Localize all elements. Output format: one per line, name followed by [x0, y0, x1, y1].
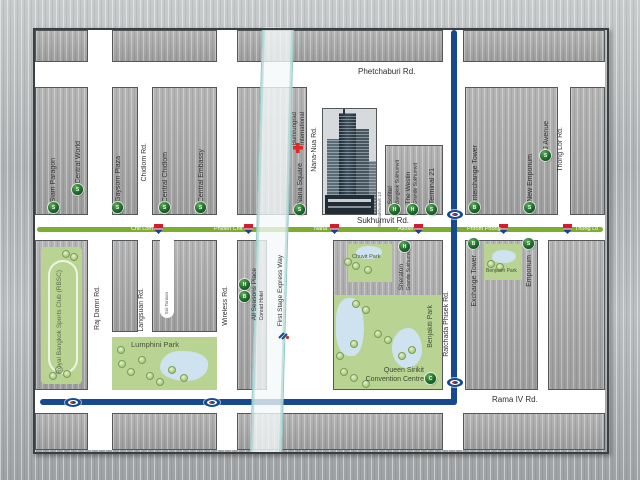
poi-marker-all-seasons-place: B — [239, 291, 250, 302]
tree-icon — [352, 262, 360, 270]
poi-label-exchange-tower: Exchange Tower — [470, 255, 479, 307]
tree-icon — [340, 368, 348, 376]
tree-icon — [146, 372, 154, 380]
station-label-phloen-chit: Phloen Chit — [214, 227, 242, 232]
poi-marker-emporium: S — [523, 238, 534, 249]
poi-label-siam-paragon: Siam Paragon — [49, 158, 58, 202]
tree-icon — [63, 370, 71, 378]
poi-label-terminal21: Terminal 21 — [428, 168, 437, 204]
road-label-rama4: Rama IV Rd. — [492, 395, 538, 404]
road-label-nana-nua: Nana-Nua Rd. — [310, 127, 319, 172]
city-block — [463, 413, 605, 450]
poi-label-westin: The Westin Grande Sukhumvit — [405, 163, 420, 204]
tree-icon — [336, 352, 344, 360]
poi-label-interchange-tower: Interchange Tower — [471, 145, 480, 202]
road-label-raj-damri: Raj Damri Rd. — [93, 286, 102, 330]
poi-marker-interchange-tower: B — [469, 202, 480, 213]
poi-label-nana-square: Nana Square — [296, 163, 305, 204]
tree-icon — [138, 356, 146, 364]
tree-icon — [127, 368, 135, 376]
poi-marker-terminal21: S — [426, 204, 437, 215]
mrt-core — [452, 213, 458, 216]
tree-icon — [118, 360, 126, 368]
road-label-soi-tonson: Soi Tonson — [164, 292, 170, 314]
city-block — [112, 240, 138, 332]
poi-label-sheraton: Sheraton Grande Sukhumvit — [398, 249, 413, 290]
road-label-wireless: Wireless Rd. — [221, 286, 230, 326]
road-label-chidlom: Chidlom Rd. — [140, 143, 149, 182]
mrt-station-icon — [447, 210, 463, 219]
park-label-rbsc: Royal Bangkok Sports Club (RBSC) — [55, 270, 64, 374]
park-label-lumphini: Lumphini Park — [131, 340, 179, 349]
tree-icon — [384, 336, 392, 344]
building-photo — [322, 108, 377, 215]
map-screen: Chit Lom Phloen Chit Nana Asoke Phrom Ph… — [0, 0, 640, 480]
rama4-blue-line — [40, 399, 457, 405]
poi-marker-sofitel: H — [389, 204, 400, 215]
tree-icon — [374, 330, 382, 338]
hospital-cross-icon — [293, 143, 303, 153]
city-block — [35, 413, 88, 450]
tree-icon — [364, 266, 372, 274]
poi-label-bumrungrad: Bumrungrad International — [291, 112, 307, 145]
poi-label-emporium: Emporium — [525, 255, 534, 287]
station-label-asoke: Asoke — [398, 227, 413, 232]
skyscraper-illustration — [323, 109, 376, 214]
station-label-phrom-phong: Phrom Phong — [467, 227, 501, 232]
mrt-station-icon — [447, 378, 463, 387]
poi-marker-central-chidlom: S — [159, 202, 170, 213]
city-block — [463, 30, 605, 62]
city-block — [112, 413, 217, 450]
tree-icon — [408, 346, 416, 354]
mrt-station-icon — [204, 398, 220, 407]
poi-label-central-chidlom: Central Chidlom — [161, 152, 170, 202]
poi-marker-gaysorn-plaza: S — [112, 202, 123, 213]
road-label-ratchada-phisek: Ratchada Phisek Rd. — [442, 291, 451, 357]
poi-marker-central-world: S — [72, 184, 83, 195]
tree-icon — [362, 306, 370, 314]
poi-label-all-seasons: All Seasons Place Conrad Hotel — [251, 268, 266, 320]
poi-marker-siam-paragon: S — [48, 202, 59, 213]
park-label-benjakiti: Benjakiti Park — [426, 305, 435, 348]
poi-label-central-world: Central World — [74, 141, 83, 184]
poi-marker-new-emporium: S — [524, 202, 535, 213]
pond — [336, 298, 364, 356]
poi-marker-central-embassy: S — [195, 202, 206, 213]
tree-icon — [156, 378, 164, 386]
city-block — [35, 30, 88, 62]
road-label-sukhumvit: Sukhumvit Rd. — [357, 216, 409, 225]
poi-marker-queen-sirikit: C — [425, 373, 436, 384]
tree-icon — [344, 258, 352, 266]
tree-icon — [180, 374, 188, 382]
poi-label-sofitel: Sofitel Bangkok Sukhumvit — [387, 160, 402, 204]
tree-icon — [117, 346, 125, 354]
poi-marker-nana-square: S — [294, 204, 305, 215]
pond — [492, 250, 516, 263]
poi-label-j-avenue: J Avenue — [542, 121, 551, 150]
tree-icon — [398, 352, 406, 360]
poi-label-queen-sirikit: Queen Sirikit Convention Centre — [352, 367, 424, 384]
road-label-thong-lor: Thong Lor Rd. — [556, 127, 565, 172]
expressway-logo-icon — [278, 328, 290, 340]
mrt-ring — [450, 212, 460, 217]
tree-icon — [70, 253, 78, 261]
mrt-ring — [207, 400, 217, 405]
poi-marker-westin: H — [407, 204, 418, 215]
city-block — [112, 30, 217, 62]
station-label-chit-lom: Chit Lom — [131, 227, 153, 232]
poi-marker-j-avenue: S — [540, 150, 551, 161]
station-label-nana: Nana — [314, 227, 327, 232]
station-label-thong-lo: Thong Lo — [575, 227, 598, 232]
road-label-phetchaburi: Phetchaburi Rd. — [358, 67, 415, 76]
mrt-core — [209, 401, 215, 404]
tree-icon — [487, 260, 495, 268]
tree-icon — [352, 300, 360, 308]
mrt-core — [452, 381, 458, 384]
city-block — [570, 87, 605, 215]
mrt-ring — [450, 380, 460, 385]
road-label-langsuan: Langsuan Rd. — [137, 288, 146, 332]
poi-label-new-emporium: New Emporium — [526, 154, 535, 202]
tree-icon — [62, 250, 70, 258]
pond — [392, 328, 422, 368]
park-label-benjasiri: Benjasiri Park — [486, 268, 517, 274]
poi-marker-sheraton: H — [399, 241, 410, 252]
tree-icon — [350, 340, 358, 348]
poi-label-gaysorn-plaza: Gaysorn Plaza — [114, 156, 123, 202]
poi-marker-exchange-tower: B — [468, 238, 479, 249]
poi-label-central-embassy: Central Embassy — [197, 149, 206, 202]
poi-marker-conrad-hotel: H — [239, 279, 250, 290]
mrt-ring — [68, 400, 78, 405]
road-label-expressway: First Stage Express Way — [276, 255, 285, 326]
mrt-station-icon — [65, 398, 81, 407]
park-label-chuvit: Chuvit Park — [352, 254, 380, 260]
tree-icon — [168, 366, 176, 374]
mrt-core — [70, 401, 76, 404]
city-block — [548, 240, 605, 390]
